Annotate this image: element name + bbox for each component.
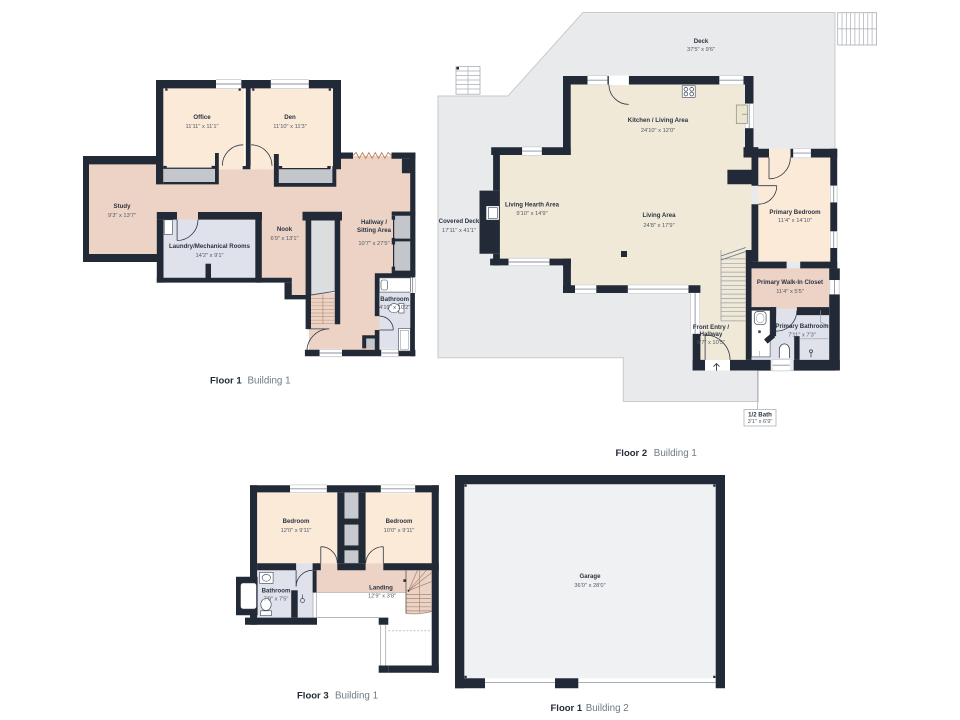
svg-text:Den: Den xyxy=(284,114,296,121)
svg-text:17'11" x 41'1": 17'11" x 41'1" xyxy=(442,228,476,234)
svg-text:4'10" x 10'2": 4'10" x 10'2" xyxy=(379,305,410,311)
svg-text:Laundry/Mechanical Rooms: Laundry/Mechanical Rooms xyxy=(169,243,251,250)
svg-text:9'3" x 13'7": 9'3" x 13'7" xyxy=(108,213,136,219)
svg-text:Living Area: Living Area xyxy=(643,212,677,219)
svg-text:24'10" x 12'0": 24'10" x 12'0" xyxy=(641,128,675,134)
svg-text:36'0" x 28'0": 36'0" x 28'0" xyxy=(574,583,605,589)
svg-text:Primary Walk-In Closet: Primary Walk-In Closet xyxy=(757,279,823,286)
svg-text:14'2" x 9'1": 14'2" x 9'1" xyxy=(195,253,223,259)
svg-text:Bedroom: Bedroom xyxy=(386,518,413,525)
svg-text:Bathroom: Bathroom xyxy=(262,588,291,595)
svg-text:11'4" x 14'10": 11'4" x 14'10" xyxy=(778,218,812,224)
svg-text:7'9" x 7'5": 7'9" x 7'5" xyxy=(264,597,289,603)
svg-text:Deck: Deck xyxy=(694,38,709,45)
svg-text:3'1" x 6'9": 3'1" x 6'9" xyxy=(748,419,773,425)
svg-text:Landing: Landing xyxy=(369,585,393,592)
svg-text:6'9" x 13'1": 6'9" x 13'1" xyxy=(270,236,298,242)
svg-text:Study: Study xyxy=(114,203,132,210)
svg-text:11'4" x 5'5": 11'4" x 5'5" xyxy=(776,289,804,295)
svg-text:12'0" x 9'11": 12'0" x 9'11" xyxy=(281,528,312,534)
svg-text:10'0" x 9'11": 10'0" x 9'11" xyxy=(384,528,415,534)
svg-text:Bedroom: Bedroom xyxy=(283,518,310,525)
svg-text:Primary Bedroom: Primary Bedroom xyxy=(769,209,821,216)
svg-text:1/2 Bath: 1/2 Bath xyxy=(748,412,772,419)
svg-text:Sitting Area: Sitting Area xyxy=(357,227,392,234)
svg-text:9'10" x 14'9": 9'10" x 14'9" xyxy=(516,211,547,217)
svg-text:10'7" x 27'5": 10'7" x 27'5" xyxy=(358,241,389,247)
svg-text:Building 1: Building 1 xyxy=(335,691,378,702)
svg-text:Building 1: Building 1 xyxy=(248,376,291,387)
svg-text:Nook: Nook xyxy=(277,226,293,233)
svg-text:7'11" x 7'3": 7'11" x 7'3" xyxy=(788,333,816,339)
svg-text:11'10" x 11'3": 11'10" x 11'3" xyxy=(273,124,307,130)
svg-text:Building 1: Building 1 xyxy=(654,448,697,459)
svg-text:Covered Deck: Covered Deck xyxy=(439,218,480,225)
svg-text:24'8" x 17'9": 24'8" x 17'9" xyxy=(643,223,674,229)
svg-text:Hallway /: Hallway / xyxy=(361,219,387,226)
svg-text:Building 2: Building 2 xyxy=(586,703,629,714)
svg-text:Front Entry /: Front Entry / xyxy=(693,324,730,331)
svg-text:Bathroom: Bathroom xyxy=(380,296,409,303)
svg-text:Hallway: Hallway xyxy=(700,331,723,338)
svg-text:12'9" x 3'8": 12'9" x 3'8" xyxy=(368,594,396,600)
svg-text:11'11" x 11'1": 11'11" x 11'1" xyxy=(185,124,218,130)
svg-text:Floor 1: Floor 1 xyxy=(210,376,242,387)
svg-text:Kitchen / Living Area: Kitchen / Living Area xyxy=(628,117,689,124)
svg-text:Floor 1: Floor 1 xyxy=(551,703,583,714)
svg-text:6'7" x 10'5": 6'7" x 10'5" xyxy=(697,340,725,346)
svg-text:Floor 3: Floor 3 xyxy=(297,691,329,702)
svg-text:Office: Office xyxy=(193,114,211,121)
svg-text:Floor 2: Floor 2 xyxy=(616,448,648,459)
svg-text:37'5" x 9'6": 37'5" x 9'6" xyxy=(687,47,715,53)
svg-text:Garage: Garage xyxy=(579,573,601,580)
svg-text:Living Hearth Area: Living Hearth Area xyxy=(505,202,560,209)
svg-text:Primary Bathroom: Primary Bathroom xyxy=(775,323,829,330)
